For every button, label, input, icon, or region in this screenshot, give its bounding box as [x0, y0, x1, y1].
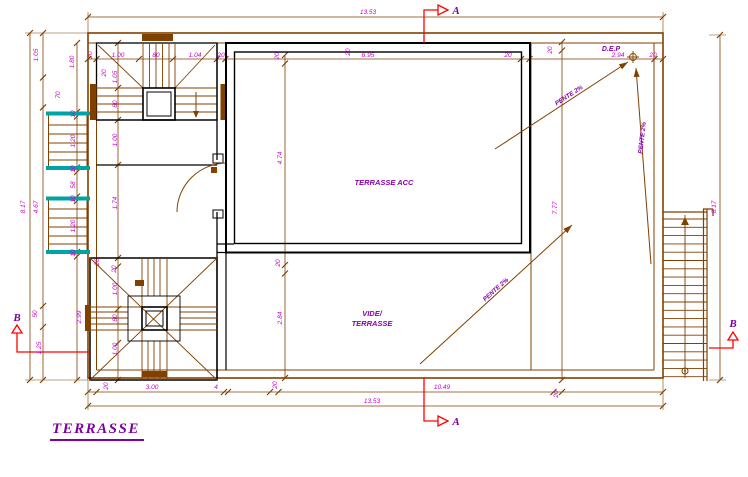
section-b-left-line [17, 333, 90, 352]
slope-label: PENTE 2% [482, 276, 511, 303]
dimension-label: 20 [274, 52, 281, 61]
dimension-label: 8.17 [20, 200, 27, 213]
stairwell-upper [90, 34, 227, 120]
dimension-label: 4.74 [277, 151, 284, 164]
stair-rail-left [90, 84, 97, 120]
balconies-left [46, 112, 90, 255]
slope-arrows [420, 62, 651, 364]
window-bars [46, 112, 90, 255]
section-b-right-line [709, 340, 733, 348]
dimension-label: 80 [112, 100, 119, 108]
floor-plan-canvas: TERRASSE ACC VIDE/ TERRASSE D.E.P A A B … [0, 0, 748, 477]
dimension-labels-layer: 13.53201.00801.04206.95202.94202020208.1… [20, 9, 718, 405]
section-letter-b-left: B [12, 312, 20, 324]
stair-rail-lower-left [85, 305, 91, 331]
dimension-label: 1.80 [69, 55, 76, 68]
dimension-label: 80 [152, 52, 160, 59]
drawing-title: TERRASSE [50, 421, 144, 441]
void-partition-walls [217, 253, 226, 381]
dimension-label: 4 [214, 384, 218, 391]
dimension-lines [25, 12, 726, 410]
stair-exterior-right [663, 209, 713, 381]
section-a-top-arrow [438, 5, 448, 15]
dimension-label: 1.00 [112, 52, 125, 59]
door-hinge [211, 167, 217, 173]
dimension-label: 10 [70, 165, 77, 173]
dimension-ticks [27, 14, 723, 409]
dimension-label: 20 [87, 51, 94, 60]
section-a-top-line [424, 10, 438, 43]
door-jamb-bottom [213, 210, 223, 218]
dimension-label: 20 [101, 69, 108, 78]
dimension-label: 70 [55, 91, 62, 99]
dimension-label: 13.53 [360, 9, 377, 16]
dimension-label: 20 [547, 46, 554, 55]
dimension-label: 20 [553, 390, 560, 399]
room-label-vide-line2: TERRASSE [352, 319, 394, 328]
dimension-label: 10 [70, 195, 77, 203]
stair-threshold-lower [142, 371, 167, 377]
dimension-label: 1.05 [33, 48, 40, 61]
dimension-label: 10 [70, 249, 77, 257]
dimension-label: 50 [32, 310, 39, 318]
stair-treads-lower [90, 258, 217, 380]
dimension-label: 2.99 [76, 310, 83, 324]
section-b-left-arrow [12, 325, 22, 333]
dimension-label: 20 [103, 382, 110, 391]
room-label-vide-line1: VIDE/ [362, 309, 383, 318]
dimension-label: 1.00 [112, 342, 119, 355]
room-label-terrasse-acc: TERRASSE ACC [355, 178, 414, 187]
dimension-label: 7.77 [552, 201, 559, 214]
slope-labels-layer: PENTE 2%PENTE 2%PENTE 2% [482, 84, 648, 303]
dimension-label: 1.20 [70, 219, 77, 232]
dimension-label: 20 [275, 259, 282, 268]
slope-arrow-2 [636, 68, 651, 264]
door-swing-arc [177, 163, 227, 212]
section-letter-b-right: B [728, 318, 736, 330]
dimension-label: 3.00 [146, 384, 159, 391]
dimension-label: 1.20 [70, 134, 77, 147]
section-b-right-arrow [728, 332, 738, 340]
dimension-label: 1.25 [36, 341, 43, 354]
dimension-label: 20 [94, 258, 101, 267]
section-markers [12, 5, 738, 426]
annotation-texts: TERRASSE ACC VIDE/ TERRASSE D.E.P A A B … [12, 5, 736, 428]
dimension-label: 1.00 [112, 133, 119, 146]
stairwell-lower [85, 258, 217, 380]
dimension-label: 20 [503, 52, 512, 59]
dimension-label: 1.04 [189, 52, 202, 59]
dimension-label: 20 [216, 52, 225, 59]
dimension-label: 13.53 [364, 398, 381, 405]
dimension-label: 20 [345, 48, 352, 57]
dimension-label: 10 [70, 110, 77, 118]
dimension-label: 1.74 [112, 196, 119, 209]
dimension-label: 20 [272, 381, 279, 390]
dimension-label: 8.17 [711, 200, 718, 213]
slope-label: PENTE 2% [637, 121, 648, 154]
dimension-label: 58 [70, 181, 77, 189]
slope-arrow-1 [495, 62, 628, 149]
stair-core-upper [143, 88, 175, 120]
dimension-label: 10.49 [434, 384, 451, 391]
section-a-bottom-arrow [438, 416, 448, 426]
dimension-label: 1.05 [112, 70, 119, 83]
balcony-ladders [49, 116, 88, 251]
door-jamb-top [213, 154, 223, 163]
slope-label: PENTE 2% [554, 84, 585, 107]
stair-threshold-upper [142, 34, 173, 41]
dimension-label: 20 [111, 265, 118, 274]
dimension-label: 2.84 [277, 311, 284, 325]
dimension-label: 2.94 [611, 52, 625, 59]
section-letter-a-bottom: A [451, 416, 459, 428]
drain-symbol [627, 51, 639, 63]
stair-newel-mark [135, 280, 144, 286]
dimension-label: 4.67 [33, 200, 40, 213]
section-letter-a-top: A [451, 5, 459, 17]
room-terrasse-acc [226, 43, 530, 253]
dimension-label: 80 [112, 314, 119, 322]
dimension-label: 1.00 [112, 282, 119, 295]
dimension-label: 20 [648, 52, 657, 59]
floor-plan-drawing: TERRASSE ACC VIDE/ TERRASSE D.E.P A A B … [0, 0, 748, 477]
dimension-label: 6.95 [362, 52, 375, 59]
